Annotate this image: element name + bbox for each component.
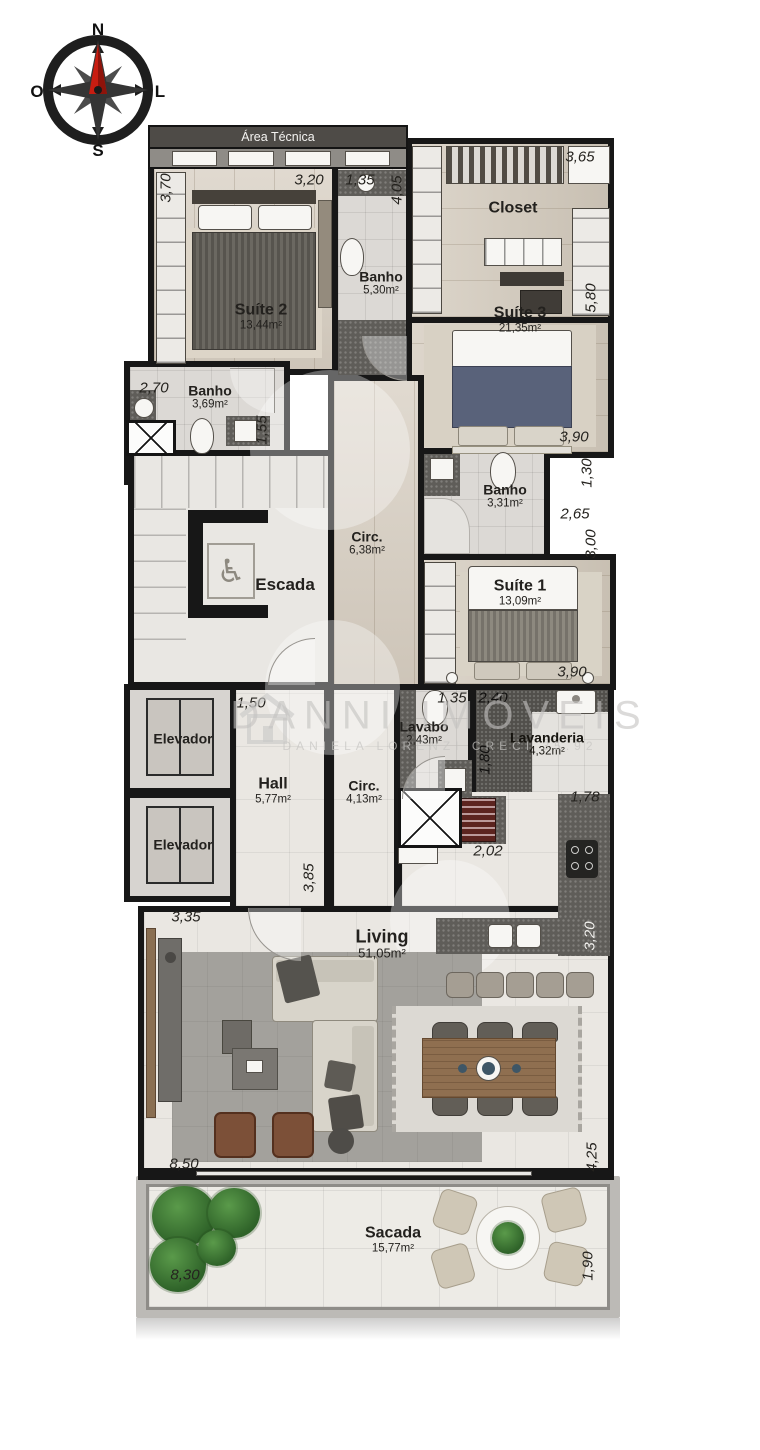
compass-graphic <box>30 22 166 158</box>
burner <box>571 862 579 870</box>
wardrobe-suite1 <box>424 562 456 684</box>
escada-steps-top <box>134 456 328 508</box>
sliding-glass-door <box>196 1171 532 1176</box>
compass-north-label: N <box>92 20 104 40</box>
kitchen-island <box>436 918 590 954</box>
media-wall-wood <box>146 928 156 1118</box>
dim-2-65: 2,65 <box>560 506 589 523</box>
compass-east-label: L <box>155 82 165 102</box>
wheelchair-icon: ♿ <box>207 543 255 599</box>
room-area: 3,69m² <box>188 398 232 411</box>
room-area: 4,13m² <box>346 793 382 806</box>
room-name: Sacada <box>365 1225 421 1242</box>
bed-suite3-duvet <box>452 366 572 428</box>
burner <box>585 846 593 854</box>
label-banho-suite1: Banho 3,31m² <box>483 482 527 509</box>
room-name: Suíte 1 <box>494 578 546 595</box>
label-lavanderia: Lavanderia 4,32m² <box>510 730 584 757</box>
island-sink <box>488 924 513 948</box>
room-name: Hall <box>255 776 291 793</box>
banho-social-sink <box>134 398 154 418</box>
room-area: 21,35m² <box>494 322 546 335</box>
compass-rose-icon: N S O L <box>30 22 166 158</box>
dim-3-00: 3,00 <box>583 529 600 558</box>
dim-1-78: 1,78 <box>570 789 599 806</box>
dim-3-65: 3,65 <box>565 149 594 166</box>
dim-3-85: 3,85 <box>301 863 318 892</box>
desk-suite2 <box>318 200 332 308</box>
dim-1-80: 1,80 <box>477 745 494 774</box>
room-area: 3,31m² <box>483 497 527 510</box>
bar-stool <box>536 972 564 998</box>
bar-stool <box>566 972 594 998</box>
label-sacada: Sacada 15,77m² <box>365 1225 421 1254</box>
dim-3-20-top: 3,20 <box>294 172 323 189</box>
closet-bench <box>500 272 564 286</box>
dim-3-70: 3,70 <box>158 173 175 202</box>
bar-stool <box>446 972 474 998</box>
room-name: Lavabo <box>399 719 448 734</box>
room-name: Suíte 2 <box>235 302 287 319</box>
plant <box>198 1230 236 1266</box>
table-plant <box>492 1222 524 1254</box>
label-living: Living 51,05m² <box>356 927 409 960</box>
dim-3-35: 3,35 <box>171 909 200 926</box>
dim-1-35-lavabo: 1,35 <box>437 690 466 707</box>
bar-stool <box>476 972 504 998</box>
bed-suite3-base <box>452 446 572 454</box>
closet-shelves-left <box>412 146 442 314</box>
leather-armchair <box>214 1112 256 1158</box>
room-name: Banho <box>359 269 403 284</box>
label-circ-superior: Circ. 6,38m² <box>349 529 385 556</box>
label-suite1: Suíte 1 13,09m² <box>494 578 546 607</box>
small-bowl <box>512 1064 521 1073</box>
dim-2-02: 2,02 <box>473 843 502 860</box>
label-suite2: Suíte 2 13,44m² <box>235 302 287 331</box>
dim-2-70: 2,70 <box>139 380 168 397</box>
ac-condenser-unit <box>345 151 390 166</box>
kitchen-cabinet <box>398 846 438 864</box>
ac-condenser-unit <box>228 151 274 166</box>
compass-south-label: S <box>92 141 103 161</box>
room-name: Suíte 3 <box>494 305 546 322</box>
dim-5-80: 5,80 <box>583 283 600 312</box>
label-banho-social: Banho 3,69m² <box>188 383 232 410</box>
room-name: Closet <box>489 201 538 218</box>
label-hall: Hall 5,77m² <box>255 776 291 805</box>
room-name: Escada <box>255 576 315 594</box>
room-name: Circ. <box>349 529 385 544</box>
dim-8-30: 8,30 <box>170 1267 199 1284</box>
bed-suite1-pillow <box>474 662 520 680</box>
room-area: 5,77m² <box>255 793 291 806</box>
room-name: Elevador <box>153 838 212 853</box>
area-tecnica-label: Área Técnica <box>241 130 314 144</box>
label-lavabo: Lavabo 2,43m² <box>399 719 448 746</box>
closet-hanging-rod <box>446 146 564 184</box>
shaft-x-icon <box>126 420 176 456</box>
sofa-dark-cushion <box>328 1094 364 1132</box>
room-name: Banho <box>188 383 232 398</box>
label-elevador-1: Elevador <box>153 732 212 747</box>
bed-suite2-pillow <box>258 205 312 230</box>
floor-plan-page: N S O L Área Técnica <box>0 0 760 1450</box>
dining-chair <box>477 1096 513 1116</box>
ac-condenser-unit <box>172 151 217 166</box>
room-area: 13,44m² <box>235 319 287 332</box>
coffee-table-book <box>246 1060 263 1073</box>
laundry-tub-drain-icon <box>572 695 580 703</box>
burner <box>585 862 593 870</box>
bed-suite1-duvet <box>468 610 578 662</box>
label-circ-inferior: Circ. 4,13m² <box>346 778 382 805</box>
dim-1-50: 1,50 <box>236 695 265 712</box>
room-area: 2,43m² <box>399 734 448 747</box>
dining-chair <box>522 1096 558 1116</box>
room-area: 15,77m² <box>365 1242 421 1255</box>
dim-3-20-kitchen: 3,20 <box>582 921 599 950</box>
closet-island-dresser <box>484 238 562 266</box>
room-name: Living <box>356 927 409 946</box>
dim-3-90-suite1: 3,90 <box>557 664 586 681</box>
area-tecnica-bar: Área Técnica <box>148 125 408 149</box>
wheelchair-glyph: ♿ <box>217 552 246 590</box>
compass-west-label: O <box>30 82 43 102</box>
room-name: Circ. <box>346 778 382 793</box>
dim-3-90-suite3: 3,90 <box>559 429 588 446</box>
escada-inner-wall <box>188 510 203 618</box>
dim-4-05: 4,05 <box>389 175 406 204</box>
room-area: 13,09m² <box>494 595 546 608</box>
bed-suite3-pillow <box>458 426 508 446</box>
dim-4-25: 4,25 <box>584 1142 601 1171</box>
room-name: Banho <box>483 482 527 497</box>
leather-armchair <box>272 1112 314 1158</box>
room-area: 6,38m² <box>349 544 385 557</box>
dim-2-40: 2,40 <box>478 690 507 707</box>
room-name: Lavanderia <box>510 730 584 745</box>
banho-social-toilet <box>190 418 214 454</box>
dining-chair <box>432 1096 468 1116</box>
bar-stool <box>506 972 534 998</box>
room-area: 4,32m² <box>510 745 584 758</box>
side-table <box>328 1128 354 1154</box>
plan-shadow <box>136 1318 620 1340</box>
bed-suite3-pillow <box>514 426 564 446</box>
dim-1-55: 1,55 <box>254 415 271 444</box>
bed-suite2-duvet <box>192 232 316 350</box>
label-escada: Escada <box>255 576 315 594</box>
banho-suite1-basin <box>430 458 454 480</box>
wine-rack <box>460 798 496 842</box>
dim-1-30: 1,30 <box>579 458 596 487</box>
room-name: Elevador <box>153 732 212 747</box>
room-area: 51,05m² <box>356 946 409 960</box>
burner <box>571 846 579 854</box>
island-sink <box>516 924 541 948</box>
dim-1-35-top: 1,35 <box>345 172 374 189</box>
escada-steps-left <box>134 508 186 640</box>
label-suite3: Suíte 3 21,35m² <box>494 305 546 334</box>
centerpiece-bowl <box>482 1062 495 1075</box>
sofa-dark-cushion <box>324 1060 356 1092</box>
room-area: 5,30m² <box>359 284 403 297</box>
bed-suite2-pillow <box>198 205 252 230</box>
bed-suite3-sheet <box>452 330 572 368</box>
bed-suite2-headboard <box>192 190 316 204</box>
small-bowl <box>458 1064 467 1073</box>
label-elevador-2: Elevador <box>153 838 212 853</box>
cooktop-icon <box>566 840 598 878</box>
label-closet: Closet <box>489 201 538 218</box>
suite1-side-table <box>446 672 458 684</box>
dim-8-50: 8,50 <box>169 1156 198 1173</box>
label-banho-suite2: Banho 5,30m² <box>359 269 403 296</box>
dim-1-90: 1,90 <box>580 1251 597 1280</box>
escada-inner-wall <box>188 605 268 618</box>
speaker-icon <box>165 952 176 963</box>
ac-condenser-unit <box>285 151 331 166</box>
